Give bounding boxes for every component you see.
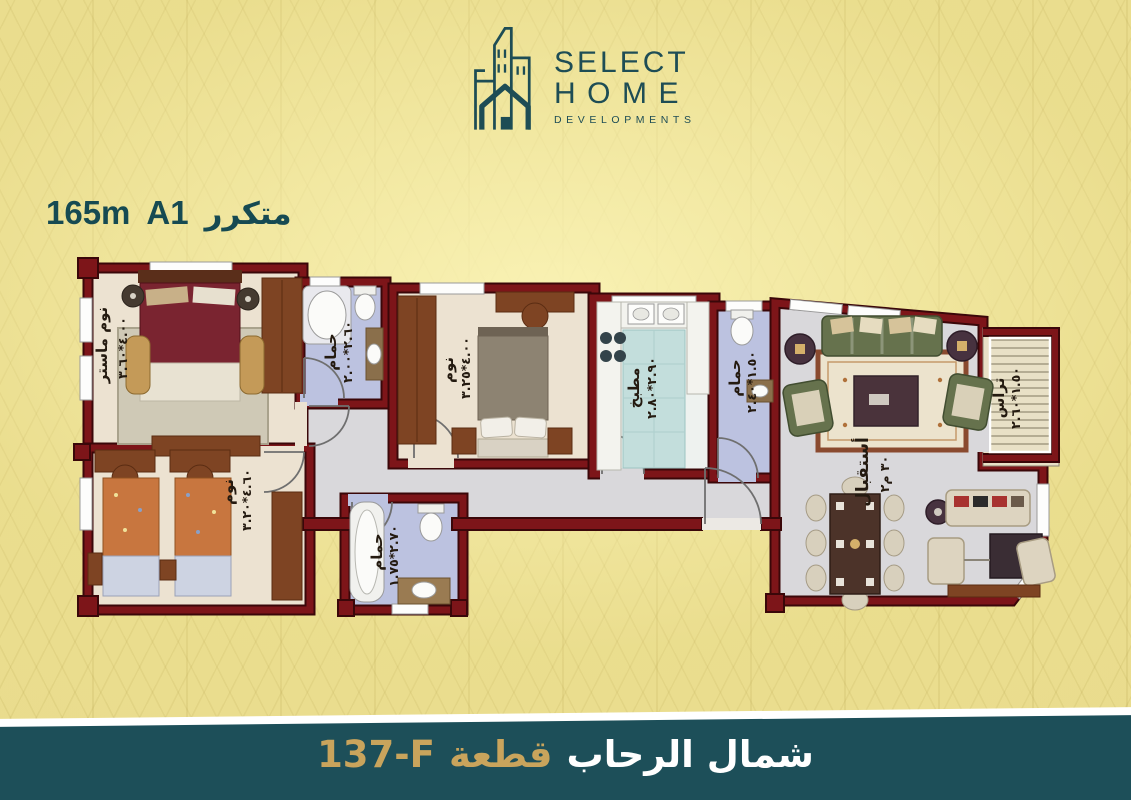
floor-plan-poster: SELECT HOME DEVELOPMENTS 165m A1 متكرر: [0, 0, 1131, 800]
svg-text:٢.٦٠*٢.٠٠: ٢.٦٠*٢.٠٠: [340, 321, 355, 383]
svg-text:حمام: حمام: [726, 359, 744, 397]
svg-text:حمام: حمام: [322, 333, 340, 371]
svg-text:أستقبال: أستقبال: [851, 437, 873, 507]
svg-text:حمام: حمام: [368, 533, 386, 571]
apartment-floor-plan: نوم ماستر ٤.٠٠*٣.٦٠ حمام ٢.٦٠*٢.٠٠ نوم ٤…: [0, 0, 1131, 800]
svg-text:تراس: تراس: [990, 378, 1008, 419]
footer-banner: 137-F قطعة شمال الرحاب: [0, 700, 1131, 800]
svg-text:١.٥٠*٢.٤٠: ١.٥٠*٢.٤٠: [744, 351, 759, 413]
svg-text:٤.٦٠*٣.٢٠: ٤.٦٠*٣.٢٠: [239, 469, 254, 531]
svg-text:٢.٩٠*٢.٨٠: ٢.٩٠*٢.٨٠: [644, 357, 659, 419]
svg-text:نوم: نوم: [219, 479, 237, 505]
plot-number: 137-F: [317, 733, 435, 776]
svg-text:نوم ماستر: نوم ماستر: [93, 307, 111, 384]
svg-text:٣٠ م٢: ٣٠ م٢: [877, 456, 893, 492]
location-arabic: شمال الرحاب: [567, 733, 814, 776]
svg-text:٢.٧٠*١.٧٥: ٢.٧٠*١.٧٥: [386, 525, 401, 587]
project-location-line: 137-F قطعة شمال الرحاب: [0, 733, 1131, 776]
svg-text:نوم: نوم: [439, 357, 457, 383]
svg-text:١.٥٠*٢.٦٠: ١.٥٠*٢.٦٠: [1008, 367, 1023, 429]
plot-label-arabic: قطعة: [449, 733, 553, 776]
svg-text:٤.٠٠*٣.٢٥: ٤.٠٠*٣.٢٥: [458, 337, 473, 399]
svg-text:مطبخ: مطبخ: [625, 368, 643, 409]
svg-text:٤.٠٠*٣.٦٠: ٤.٠٠*٣.٦٠: [115, 317, 130, 379]
